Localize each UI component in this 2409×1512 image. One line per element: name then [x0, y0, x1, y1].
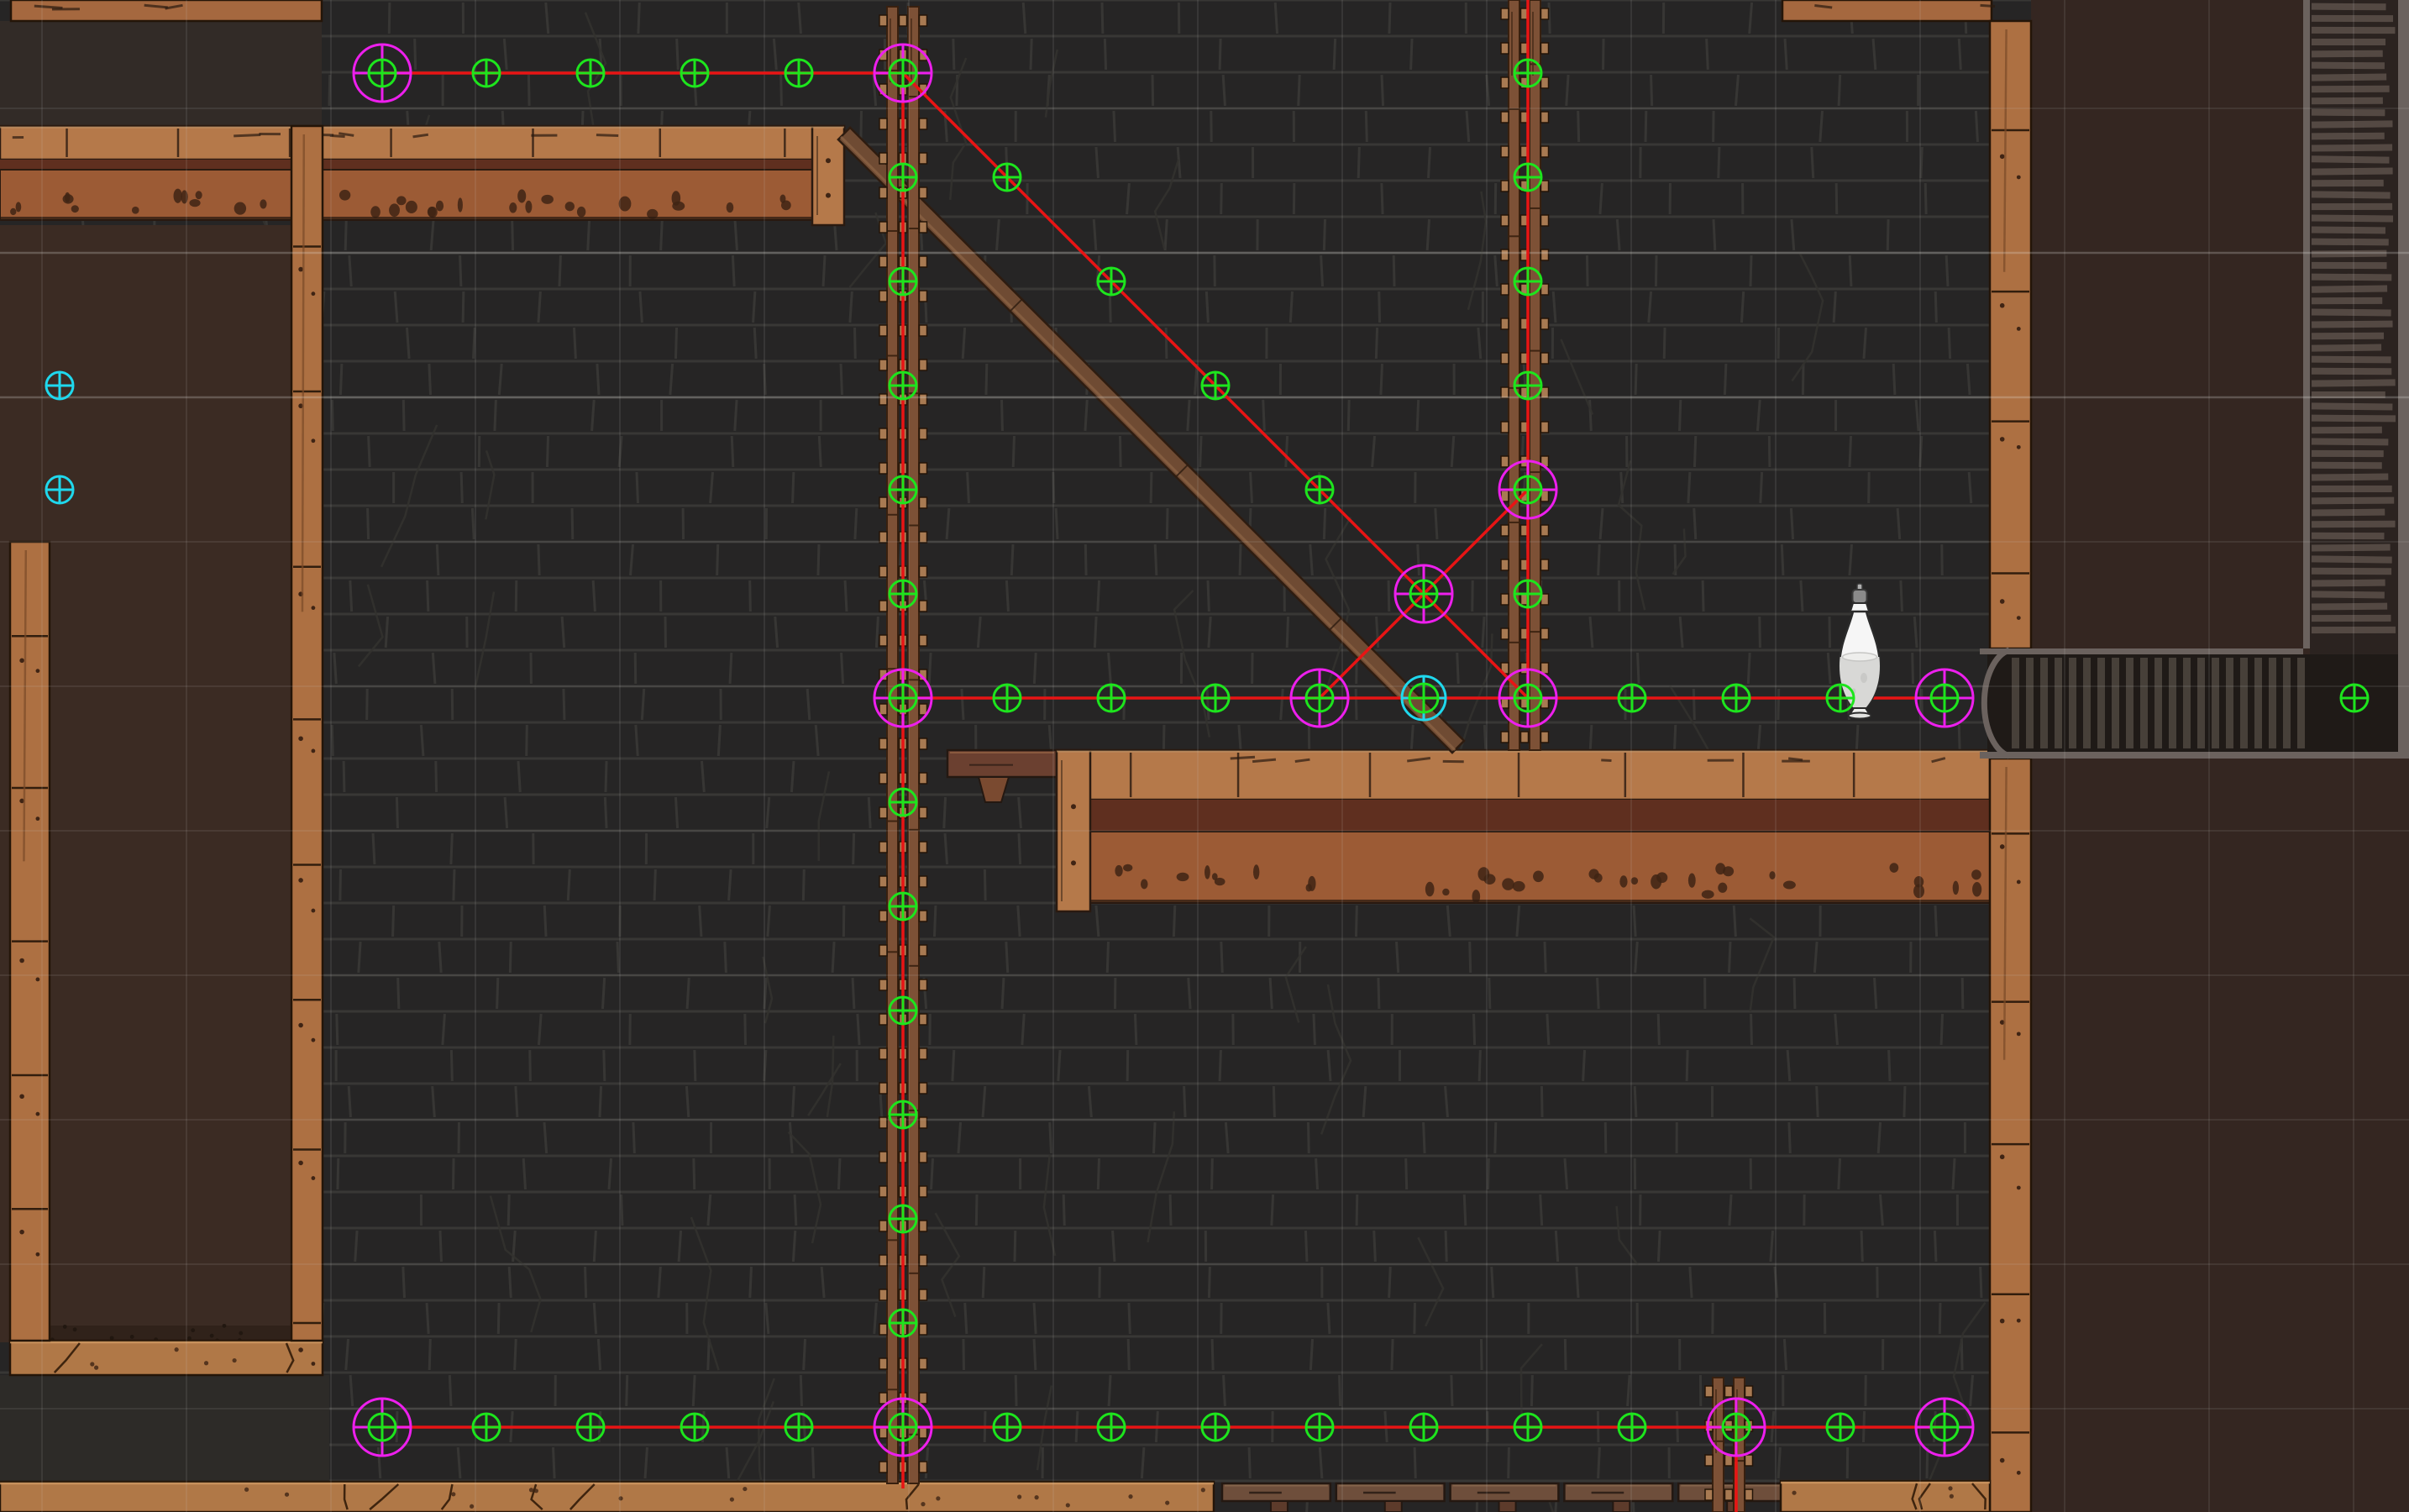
ladder-rung — [920, 635, 927, 646]
waypoint-node[interactable] — [890, 1101, 916, 1128]
tunnel-slat — [2183, 658, 2191, 748]
waypoint-node[interactable] — [890, 1310, 916, 1336]
waypoint-junction-magenta[interactable] — [874, 45, 932, 102]
shaft-slat — [2312, 568, 2391, 575]
ladder-rung — [1541, 249, 1549, 260]
shaft-slat — [2312, 544, 2391, 552]
ladder-rung — [920, 773, 927, 784]
shaft-slat — [2312, 486, 2392, 492]
ladder-rung — [879, 1427, 887, 1438]
bottle-foot — [1849, 713, 1871, 719]
tunnel-slat — [2283, 658, 2291, 748]
ladder-rung — [1501, 77, 1509, 88]
ladder-rung — [1745, 1386, 1753, 1397]
ladder-rung — [920, 911, 927, 921]
ladder-rung — [1501, 318, 1509, 329]
ladder-rail — [887, 7, 898, 1483]
tunnel-slat — [2269, 658, 2276, 748]
wood-pillar — [1990, 759, 2031, 1512]
tunnel-slat — [2026, 658, 2034, 748]
ladder-rung — [879, 1186, 887, 1197]
ladder-rung — [1501, 215, 1509, 226]
ladder-rung — [920, 842, 927, 853]
waypoint-node[interactable] — [785, 1414, 812, 1441]
tunnel-slat — [2040, 658, 2048, 748]
ladder-rung — [879, 256, 887, 267]
ladder-rung — [1501, 422, 1509, 433]
shaft-slat — [2312, 450, 2384, 457]
tunnel-slat — [2240, 658, 2248, 748]
waypoint-node-cyan[interactable] — [46, 372, 73, 399]
tunnel-slat — [2055, 658, 2062, 748]
waypoint-node[interactable] — [473, 60, 500, 87]
shaft-slat — [2312, 474, 2388, 481]
ladder-rung — [920, 738, 927, 749]
shaft-slat — [2312, 191, 2391, 198]
ladder-rung — [879, 1324, 887, 1335]
tunnel-slat — [2083, 658, 2091, 748]
shaft-slat — [2312, 333, 2384, 340]
waypoint-junction-magenta[interactable] — [1499, 669, 1556, 727]
ladder-rung — [879, 1289, 887, 1300]
shaft-slat — [2312, 3, 2386, 11]
tunnel-slat — [2126, 658, 2133, 748]
ladder-rung — [879, 428, 887, 439]
ladder-rung — [1501, 43, 1509, 54]
ladder-rung — [1521, 732, 1529, 743]
ladder-rung — [920, 1393, 927, 1404]
waypoint-node[interactable] — [785, 60, 812, 87]
waypoint-node[interactable] — [994, 1414, 1021, 1441]
dark-alcove — [0, 21, 322, 127]
ladder-rung — [879, 463, 887, 474]
ladder-rung — [879, 222, 887, 233]
ladder-rung — [920, 945, 927, 956]
game-scene — [0, 0, 2409, 1512]
ladder-rung — [1725, 1386, 1733, 1397]
wood-floor-slab — [1781, 1481, 1990, 1512]
ladder-rung — [879, 394, 887, 405]
waypoint-junction-magenta[interactable] — [1395, 565, 1452, 622]
ladder-rung — [1705, 1489, 1713, 1500]
ladder-rung — [920, 153, 927, 164]
shaft-slat — [2312, 133, 2385, 140]
ladder-rung — [920, 566, 927, 577]
ladder-rung — [920, 1048, 927, 1059]
wood-ceiling-strip — [1782, 0, 1995, 21]
waypoint-node[interactable] — [1514, 164, 1541, 191]
ladder-rung — [920, 360, 927, 370]
waypoint-junction-magenta[interactable] — [874, 1399, 932, 1456]
walkway-peg — [1271, 1501, 1288, 1512]
ladder-rung — [1745, 1489, 1753, 1500]
ladder-rung — [920, 1358, 927, 1369]
tunnel-slat — [2212, 658, 2219, 748]
shaft-slat — [2312, 120, 2393, 128]
ladder-rung — [920, 807, 927, 818]
ladder-rung — [920, 1083, 927, 1094]
shaft-slat — [2312, 533, 2385, 539]
shaft-slat — [2312, 580, 2385, 587]
shaft-slat — [2312, 167, 2393, 175]
tunnel-top-frame — [1980, 648, 2303, 654]
ladder-rung — [1501, 456, 1509, 467]
shaft-slat — [2312, 615, 2391, 622]
shaft-slat — [2312, 144, 2392, 152]
ladder-rung — [1745, 1455, 1753, 1466]
waypoint-junction-magenta[interactable] — [874, 669, 932, 727]
waypoint-junction-magenta[interactable] — [1291, 669, 1348, 727]
waypoint-node[interactable] — [1723, 685, 1750, 711]
wood-pillar — [291, 126, 323, 1366]
ladder-rung — [920, 325, 927, 336]
ladder-rung — [879, 15, 887, 26]
ladder-rung — [920, 15, 927, 26]
waypoint-node[interactable] — [994, 685, 1021, 711]
ladder-rung — [879, 1152, 887, 1163]
ladder-rung — [879, 566, 887, 577]
waypoint-node[interactable] — [890, 476, 916, 503]
ladder-rung — [1541, 215, 1549, 226]
ladder-rung — [920, 876, 927, 887]
tunnel-slat — [2112, 658, 2119, 748]
shaft-slat — [2312, 285, 2387, 292]
shaft-slat — [2312, 226, 2385, 234]
ladder-rung — [1501, 559, 1509, 570]
ladder-rung — [879, 187, 887, 198]
shaft-left-frame — [2303, 0, 2310, 648]
ladder-rung — [879, 1221, 887, 1231]
shaft-slat — [2312, 50, 2383, 58]
ladder-rung — [1541, 284, 1549, 295]
shaft-slat — [2312, 180, 2384, 186]
waypoint-junction-magenta[interactable] — [354, 1399, 411, 1456]
shaft-slat — [2312, 203, 2392, 210]
waypoint-node[interactable] — [1619, 685, 1645, 711]
small-shelf-board — [947, 750, 1057, 777]
ladder-rung — [879, 291, 887, 302]
waypoint-junction-magenta[interactable] — [354, 45, 411, 102]
shaft-slat — [2312, 308, 2391, 316]
ladder-rung — [879, 497, 887, 508]
ladder-rung — [1501, 112, 1509, 123]
ladder-rung — [1541, 318, 1549, 329]
shaft-slat — [2312, 155, 2390, 163]
waypoint-node[interactable] — [1827, 1414, 1854, 1441]
waypoint-node[interactable] — [1202, 685, 1229, 711]
ladder-rung — [1541, 181, 1549, 192]
shaft-slat — [2312, 402, 2393, 410]
ladder-rung — [900, 15, 907, 26]
ladder-rung — [1501, 594, 1509, 605]
ladder-rung — [1501, 284, 1509, 295]
waypoint-junction-magenta[interactable] — [1708, 1399, 1765, 1456]
shaft-slat — [2312, 368, 2391, 375]
tunnel-slat — [2297, 658, 2305, 748]
waypoint-node[interactable] — [577, 60, 604, 87]
ladder-rung — [920, 1462, 927, 1473]
ladder-rung — [1501, 146, 1509, 157]
waypoint-node[interactable] — [890, 372, 916, 399]
tunnel-slat — [2012, 658, 2019, 748]
dark-alcove — [0, 1375, 329, 1483]
walkway-peg — [1385, 1501, 1402, 1512]
waypoint-node[interactable] — [1514, 1414, 1541, 1441]
ladder-rung — [1541, 559, 1549, 570]
tunnel-slat — [2226, 658, 2233, 748]
waypoint-junction-magenta[interactable] — [1916, 1399, 1973, 1456]
tunnel-slat — [2097, 658, 2105, 748]
ladder-rung — [920, 222, 927, 233]
ladder-rung — [879, 1462, 887, 1473]
ladder-rung — [879, 945, 887, 956]
shaft-slat — [2312, 321, 2393, 328]
ladder-rung — [920, 1117, 927, 1128]
ladder-rung — [879, 1048, 887, 1059]
shaft-slat — [2312, 73, 2386, 81]
shaft-slat — [2312, 603, 2387, 611]
wood-pillar — [1990, 21, 2031, 648]
wood-floor-slab — [10, 1341, 323, 1375]
ladder-rung — [920, 1186, 927, 1197]
wood-platform — [0, 126, 844, 225]
shaft-slat — [2312, 356, 2391, 364]
waypoint-node[interactable] — [1619, 1414, 1645, 1441]
tunnel-slat — [2169, 658, 2176, 748]
ladder-rung — [1501, 249, 1509, 260]
ladder-rung — [1541, 525, 1549, 536]
shaft-slat — [2312, 297, 2382, 304]
ladder-rung — [1725, 1489, 1733, 1500]
shaft-slat — [2312, 62, 2385, 70]
wood-pillar — [10, 542, 50, 1341]
waypoint-node[interactable] — [890, 893, 916, 920]
ladder-rung — [1501, 181, 1509, 192]
ladder-rung — [920, 497, 927, 508]
ladder-rung — [920, 1289, 927, 1300]
tunnel-bottom-frame — [1980, 752, 2409, 759]
waypoint-node[interactable] — [994, 164, 1021, 191]
ladder-rung — [1501, 628, 1509, 639]
waypoint-node[interactable] — [1410, 1414, 1437, 1441]
ladder-rung — [920, 979, 927, 990]
shaft-slat — [2312, 15, 2393, 22]
waypoint-node[interactable] — [890, 789, 916, 816]
ladder-rung — [920, 118, 927, 129]
ladder-rung — [1541, 353, 1549, 364]
ladder-rung — [920, 291, 927, 302]
waypoint-node[interactable] — [577, 1414, 604, 1441]
waypoint-node[interactable] — [890, 164, 916, 191]
ladder-rung — [920, 601, 927, 612]
ladder-rung — [1501, 353, 1509, 364]
ladder-rung — [879, 325, 887, 336]
waypoint-node[interactable] — [1306, 476, 1333, 503]
ladder-rung — [879, 1358, 887, 1369]
shaft-slat — [2312, 262, 2387, 269]
wood-floor-slab — [0, 1482, 1214, 1512]
bottle-stopper — [1853, 590, 1867, 603]
tunnel-slat — [2069, 658, 2076, 748]
ladder-rung — [1705, 1455, 1713, 1466]
shaft-slat — [2312, 344, 2381, 352]
waypoint-node[interactable] — [1514, 268, 1541, 295]
ladder-rung — [1541, 112, 1549, 123]
ladder-rung — [920, 1427, 927, 1438]
shaft-right-frame — [2398, 0, 2409, 759]
ladder-rung — [1541, 8, 1549, 19]
ladder-rung — [879, 704, 887, 715]
ladder-rung — [1541, 422, 1549, 433]
waypoint-node[interactable] — [1514, 60, 1541, 87]
ladder-rung — [879, 738, 887, 749]
ladder-rung — [1501, 525, 1509, 536]
shaft-slat — [2312, 214, 2393, 222]
shaft-slat — [2312, 274, 2391, 281]
ladder-rung — [879, 118, 887, 129]
walkway-peg — [1499, 1501, 1516, 1512]
waypoint-node[interactable] — [2341, 685, 2368, 711]
ladder-rung — [879, 807, 887, 818]
waypoint-junction-magenta[interactable] — [1916, 669, 1973, 727]
ladder-rung — [879, 1117, 887, 1128]
shaft-slat — [2312, 39, 2385, 45]
ladder-rung — [879, 911, 887, 921]
waypoint-junction-cyan[interactable] — [1402, 676, 1446, 720]
shaft-slat — [2312, 427, 2382, 433]
ladder-rung — [879, 979, 887, 990]
waypoint-node[interactable] — [890, 1205, 916, 1232]
waypoint-node[interactable] — [681, 60, 708, 87]
wood-ceiling-strip — [11, 0, 322, 21]
waypoint-node[interactable] — [1098, 268, 1125, 295]
ladder-rung — [1705, 1386, 1713, 1397]
shaft-slat — [2312, 97, 2383, 105]
waypoint-node[interactable] — [890, 268, 916, 295]
shaft-slat — [2312, 109, 2385, 117]
ladder-rung — [879, 1014, 887, 1025]
game-viewport — [0, 0, 2409, 1512]
ladder-rung — [920, 1014, 927, 1025]
waypoint-node[interactable] — [890, 997, 916, 1024]
shaft-slat — [2312, 86, 2390, 93]
waypoint-node[interactable] — [681, 1414, 708, 1441]
ladder-rung — [920, 428, 927, 439]
ladder-rung — [1541, 77, 1549, 88]
tunnel-slat — [2254, 658, 2262, 748]
shaft-slat — [2312, 462, 2382, 469]
ladder-rung — [920, 1221, 927, 1231]
waypoint-node[interactable] — [1098, 1414, 1125, 1441]
waypoint-node-cyan[interactable] — [46, 476, 73, 503]
ladder-rung — [1501, 8, 1509, 19]
walkway-peg — [1613, 1501, 1630, 1512]
shaft-slat — [2312, 509, 2385, 517]
ladder-rung — [1541, 628, 1549, 639]
ladder-rung — [879, 773, 887, 784]
shaft-slat — [2312, 239, 2389, 246]
ladder-rung — [920, 1152, 927, 1163]
shaft-slat — [2312, 438, 2388, 446]
shaft-slat — [2312, 591, 2385, 598]
ladder-rung — [879, 635, 887, 646]
waypoint-node[interactable] — [1098, 685, 1125, 711]
ladder-rung — [920, 394, 927, 405]
waypoint-node[interactable] — [473, 1414, 500, 1441]
waypoint-node[interactable] — [1514, 580, 1541, 607]
waypoint-junction-magenta[interactable] — [1499, 461, 1556, 518]
ladder-rung — [920, 256, 927, 267]
waypoint-node[interactable] — [1306, 1414, 1333, 1441]
ladder-rung — [1541, 146, 1549, 157]
waypoint-node[interactable] — [1202, 1414, 1229, 1441]
ladder-rung — [879, 1083, 887, 1094]
ladder-rung — [879, 1393, 887, 1404]
ladder-rung — [879, 876, 887, 887]
tunnel-slat — [2154, 658, 2162, 748]
waypoint-node[interactable] — [890, 580, 916, 607]
ladder-rung — [1541, 732, 1549, 743]
shaft-slat — [2312, 555, 2392, 563]
ladder-rung — [920, 1324, 927, 1335]
ladder-rung — [879, 153, 887, 164]
ladder-rung — [920, 187, 927, 198]
ladder-rung — [879, 360, 887, 370]
ladder-rung — [879, 601, 887, 612]
tunnel-slat — [2140, 658, 2148, 748]
ladder-rung — [920, 463, 927, 474]
waypoint-node[interactable] — [1202, 372, 1229, 399]
ladder-rung — [879, 842, 887, 853]
waypoint-node[interactable] — [1827, 685, 1854, 711]
ladder-rung — [1541, 43, 1549, 54]
waypoint-node[interactable] — [1514, 372, 1541, 399]
tunnel-slat — [2197, 658, 2205, 748]
ladder-rung — [1501, 732, 1509, 743]
